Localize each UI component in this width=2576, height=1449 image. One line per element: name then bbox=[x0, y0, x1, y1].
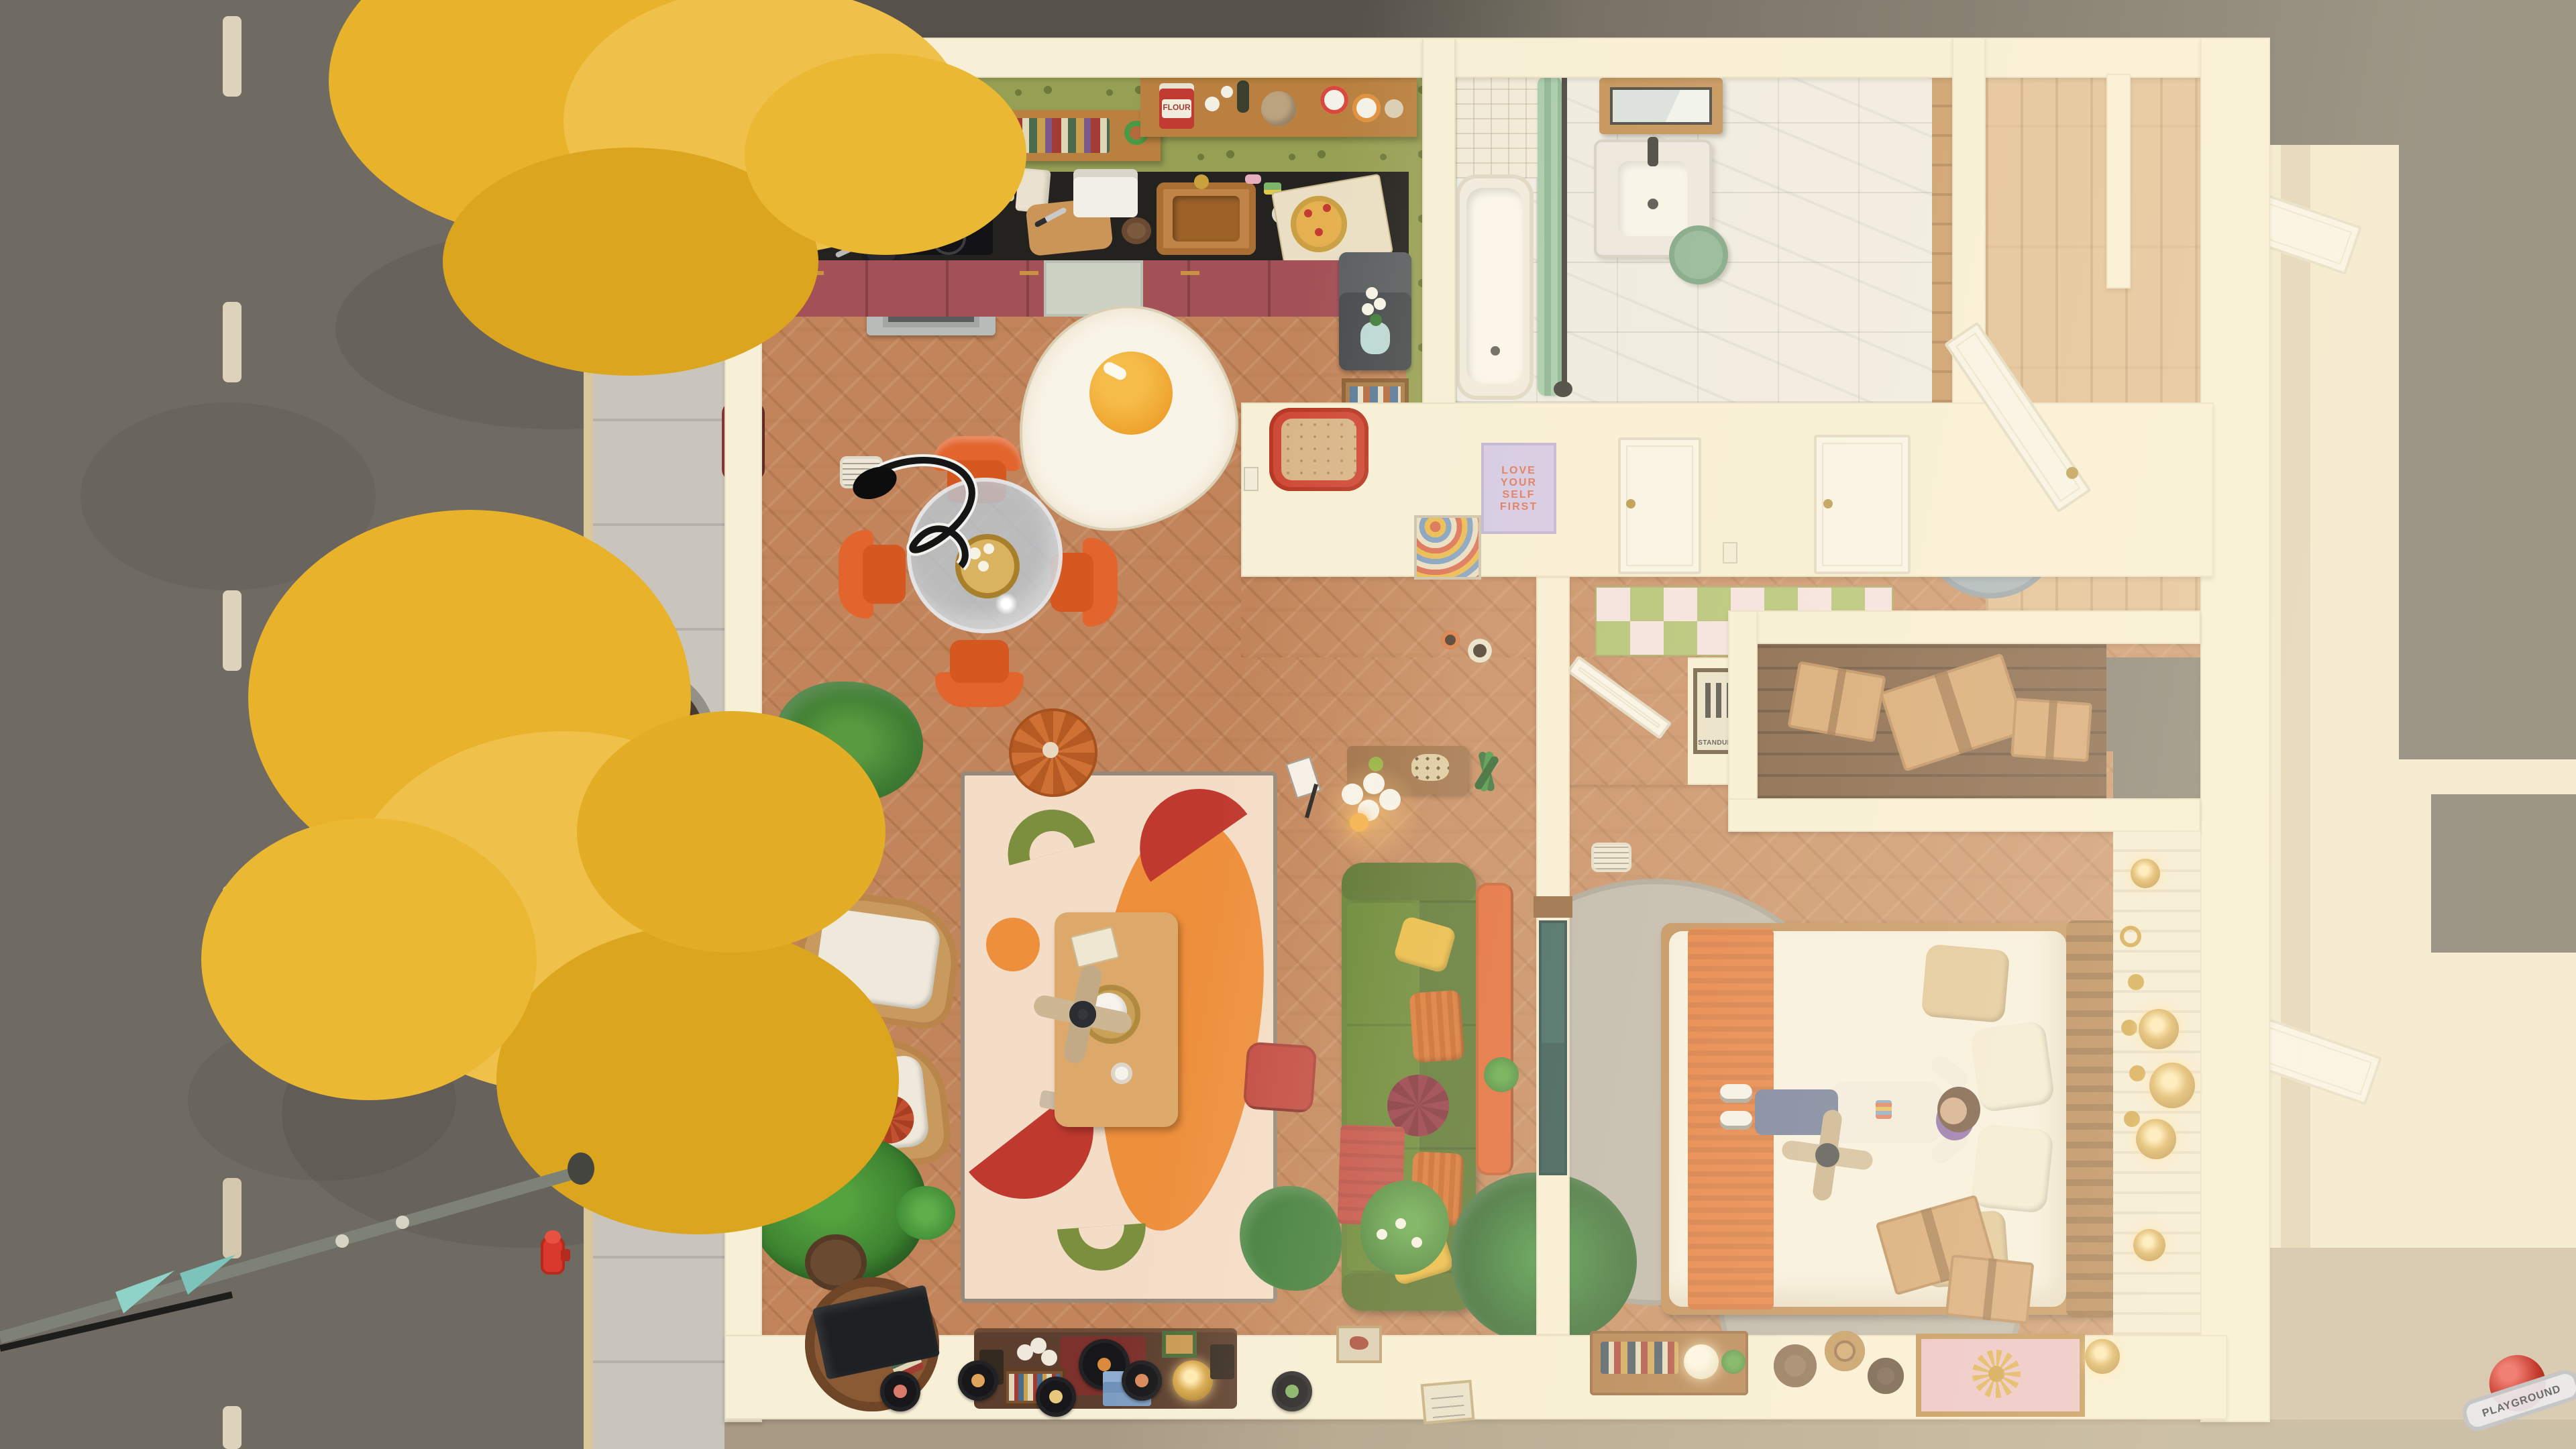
gold-wall-disc[interactable] bbox=[2139, 1009, 2179, 1049]
speaker[interactable] bbox=[1210, 1344, 1234, 1379]
bathtub[interactable] bbox=[1456, 174, 1534, 400]
bathtub-drain bbox=[1491, 346, 1500, 356]
decor-plate[interactable] bbox=[1441, 631, 1460, 649]
pouf-center bbox=[1042, 742, 1059, 758]
pepperoni bbox=[1323, 204, 1331, 212]
character-sneaker bbox=[1720, 1111, 1752, 1130]
rattan-wall-light[interactable] bbox=[2133, 1229, 2165, 1261]
pole-band bbox=[396, 1216, 409, 1229]
door-handle[interactable] bbox=[1626, 499, 1635, 508]
flour-bag[interactable]: FLOUR bbox=[1159, 83, 1194, 129]
poster-standups-figures bbox=[1705, 683, 1729, 718]
rooftop-top-band bbox=[724, 0, 2227, 38]
poster-wavy-art[interactable] bbox=[1414, 515, 1481, 580]
ceiling-fan-hub[interactable] bbox=[1069, 1001, 1096, 1028]
light-switch[interactable] bbox=[1723, 542, 1737, 563]
wall-closet-bottom bbox=[1728, 798, 2200, 832]
noodle-cup[interactable] bbox=[1320, 86, 1348, 114]
bathroom-wall-tile bbox=[1456, 74, 1547, 178]
table-glare bbox=[996, 593, 1017, 614]
wall-kitchen-bathroom-divider bbox=[1422, 38, 1456, 416]
fire-hydrant[interactable] bbox=[541, 1237, 565, 1275]
sink-faucet[interactable] bbox=[1194, 174, 1209, 189]
wavy-mirror[interactable] bbox=[1269, 408, 1368, 491]
autumn-tree-foliage bbox=[577, 711, 885, 953]
wall-entry-niche bbox=[2106, 74, 2131, 288]
floor-vent bbox=[1594, 845, 1629, 869]
light-switch[interactable] bbox=[1244, 467, 1258, 491]
poster-text: LOVE YOUR SELF FIRST bbox=[1484, 445, 1554, 531]
floor-lamp-globe[interactable] bbox=[1363, 773, 1385, 794]
rooftop-dark bbox=[2431, 794, 2576, 953]
autumn-tree-foliage bbox=[201, 818, 537, 1100]
cabinet-handle bbox=[1020, 271, 1038, 275]
gold-wall-disc[interactable] bbox=[2136, 1119, 2176, 1159]
mortar[interactable] bbox=[1122, 217, 1151, 244]
cookbooks-row[interactable] bbox=[1013, 118, 1110, 153]
chair-seat bbox=[950, 640, 1009, 683]
orchid-flowers bbox=[1366, 287, 1378, 299]
ceiling-fan-hub[interactable] bbox=[1815, 1143, 1839, 1167]
framed-print[interactable] bbox=[1336, 1326, 1382, 1363]
pepperoni bbox=[1315, 228, 1323, 236]
sink-basin bbox=[1173, 196, 1240, 241]
pendant-lamp[interactable] bbox=[845, 453, 1020, 588]
wall-vinyl-record[interactable] bbox=[1036, 1377, 1076, 1417]
framed-note[interactable] bbox=[1421, 1380, 1475, 1424]
floor-lamp-globe[interactable] bbox=[1342, 784, 1363, 805]
egg-yolk bbox=[1089, 352, 1173, 435]
floor-lamp-globe[interactable] bbox=[1379, 789, 1401, 810]
hydrant-nozzle bbox=[561, 1249, 570, 1261]
desk-plant[interactable] bbox=[1721, 1350, 1746, 1374]
pepperoni bbox=[1304, 209, 1312, 217]
character-face bbox=[1940, 1097, 1967, 1124]
woven-lamp[interactable] bbox=[1173, 1360, 1213, 1401]
divider-wood-post bbox=[1534, 896, 1572, 918]
small-plant[interactable] bbox=[896, 1186, 955, 1240]
flour-label: FLOUR bbox=[1162, 99, 1191, 118]
game-viewport: FLOUR bbox=[0, 0, 2576, 1449]
gold-wall-disc[interactable] bbox=[2149, 1063, 2195, 1108]
sink-faucet-black bbox=[1648, 137, 1658, 166]
shower-rod bbox=[1562, 74, 1567, 396]
wall-right-outer bbox=[2200, 38, 2270, 1422]
bread-loaf[interactable] bbox=[1261, 91, 1296, 126]
rug-orange-dot bbox=[986, 918, 1040, 971]
orange-bench[interactable] bbox=[1476, 883, 1513, 1175]
cat-figurine[interactable] bbox=[1411, 754, 1449, 781]
pole-band bbox=[335, 1234, 349, 1248]
soap-bar[interactable] bbox=[1245, 174, 1261, 184]
media-console[interactable] bbox=[974, 1328, 1237, 1409]
lane-dash bbox=[223, 1406, 241, 1449]
snake-plant[interactable] bbox=[1470, 751, 1503, 797]
sofa-arm bbox=[1342, 863, 1476, 900]
autumn-tree-foliage bbox=[745, 54, 1026, 255]
rattan-wall-light[interactable] bbox=[2131, 859, 2160, 888]
desk-books bbox=[1601, 1342, 1678, 1374]
wall-vinyl-record[interactable] bbox=[1272, 1371, 1312, 1411]
egg-decor bbox=[1017, 1344, 1033, 1360]
moon-garland[interactable] bbox=[2120, 926, 2141, 947]
front-door-handle[interactable] bbox=[2066, 467, 2078, 479]
wall-vinyl-record[interactable] bbox=[1122, 1360, 1162, 1401]
ground-bottom-band bbox=[724, 1419, 2576, 1449]
wall-vinyl-record[interactable] bbox=[880, 1371, 920, 1411]
pillow-white[interactable] bbox=[1971, 1123, 2054, 1214]
lane-dash bbox=[223, 590, 241, 671]
wall-desk-shelf[interactable] bbox=[1590, 1331, 1748, 1395]
flower-art-center bbox=[1988, 1366, 2004, 1382]
street-lamp[interactable] bbox=[0, 1134, 604, 1368]
hydrant-cap bbox=[545, 1230, 561, 1244]
lamp-pole bbox=[0, 1171, 581, 1338]
bottle[interactable] bbox=[1221, 86, 1233, 98]
floor-lamp-globe-amber[interactable] bbox=[1350, 813, 1368, 832]
character-sneaker bbox=[1720, 1084, 1752, 1103]
sink-drain bbox=[1648, 199, 1658, 209]
coffee-machine[interactable] bbox=[1073, 169, 1138, 217]
wall-closet-top bbox=[1731, 610, 2200, 644]
wall-hat-straw[interactable] bbox=[1825, 1331, 1865, 1371]
bottle[interactable] bbox=[1205, 97, 1220, 111]
poster-love-yourself[interactable]: LOVE YOUR SELF FIRST bbox=[1481, 443, 1556, 534]
framed-picture[interactable] bbox=[1162, 1331, 1197, 1358]
wall-vinyl-record[interactable] bbox=[958, 1360, 998, 1401]
door-handle[interactable] bbox=[1823, 499, 1833, 508]
wall-hat-cowboy[interactable] bbox=[1774, 1344, 1817, 1387]
lily-flower bbox=[1377, 1229, 1387, 1240]
vanity-mirror-cabinet[interactable] bbox=[1599, 78, 1723, 134]
decor-plate[interactable] bbox=[1468, 639, 1492, 663]
closet-box[interactable] bbox=[2010, 698, 2092, 762]
teacup[interactable] bbox=[1111, 1063, 1132, 1084]
bathroom-wood-strip bbox=[1932, 74, 1952, 402]
pillow-orange-striped[interactable] bbox=[1409, 989, 1464, 1063]
flower-art-frame[interactable] bbox=[1916, 1334, 2085, 1417]
dining-chair[interactable] bbox=[935, 635, 1024, 707]
shower-curtain[interactable] bbox=[1538, 76, 1562, 396]
mirror-glass bbox=[1281, 419, 1356, 480]
lamp-base bbox=[568, 1152, 594, 1185]
red-ottoman[interactable] bbox=[1243, 1041, 1318, 1113]
green-stool[interactable] bbox=[1669, 225, 1728, 284]
rooftop-dark bbox=[2399, 129, 2576, 759]
vanity-mirror bbox=[1610, 87, 1712, 125]
lane-dash bbox=[223, 302, 241, 382]
rattan-wall-disc[interactable] bbox=[2085, 1339, 2120, 1374]
rooftop-dark bbox=[2220, 0, 2576, 145]
playground-watermark: PLAYGROUND bbox=[2455, 1348, 2576, 1442]
cabinet-handle bbox=[1181, 271, 1199, 275]
rug-green-arc bbox=[1057, 1223, 1148, 1273]
headboard-slats bbox=[2066, 920, 2117, 1318]
pillow-white[interactable] bbox=[1970, 1020, 2055, 1113]
jar[interactable] bbox=[1385, 99, 1403, 118]
lane-dash bbox=[223, 16, 241, 97]
wine-bottle[interactable] bbox=[1237, 80, 1249, 113]
cardboard-box[interactable] bbox=[1945, 1254, 2035, 1324]
shower-head[interactable] bbox=[1554, 381, 1572, 397]
noodle-cup[interactable] bbox=[1352, 94, 1381, 122]
rug-green-arc bbox=[998, 800, 1095, 865]
globe-lamp[interactable] bbox=[1684, 1344, 1719, 1379]
potted-plant-small[interactable] bbox=[1484, 1057, 1519, 1092]
pillow-tan[interactable] bbox=[1921, 944, 2010, 1023]
wall-hat-fedora[interactable] bbox=[1868, 1358, 1904, 1394]
divider-glass-teal[interactable] bbox=[1539, 920, 1567, 1175]
character-shirt-graphic bbox=[1876, 1100, 1892, 1119]
orchid-pot[interactable] bbox=[1360, 322, 1390, 354]
